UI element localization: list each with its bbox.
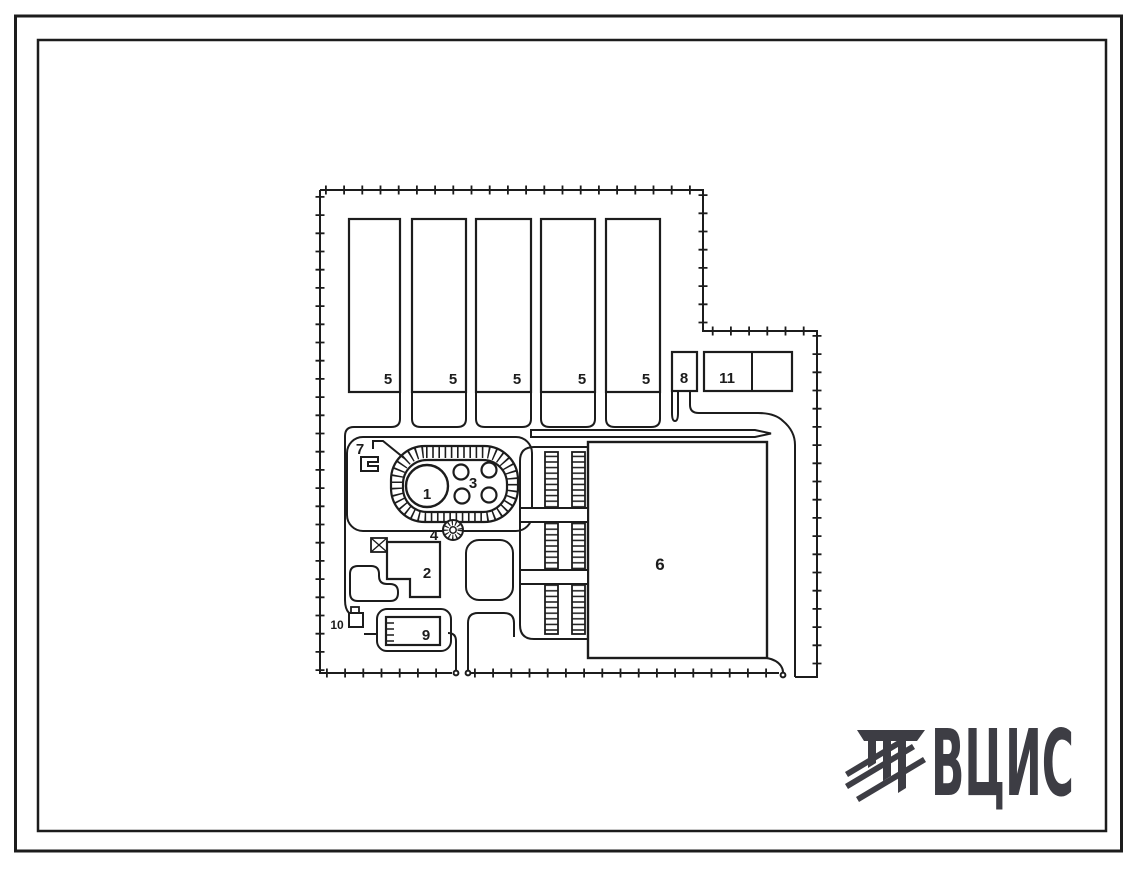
building-7-shape [361,457,378,471]
comb-strip [545,584,558,634]
gate-marker [466,671,471,676]
building-10-label: 10 [330,618,344,632]
building-9-rect [386,617,440,645]
building-5-rect [541,219,595,392]
building-2-label: 2 [423,565,431,582]
comb-strip [572,584,585,634]
building-11-rect [704,352,792,391]
treatment-basin-structure [373,441,518,522]
drawing-sheet: 5 5 5 5 5 8 11 6 1 3 4 [0,0,1139,869]
building-9-label: 9 [422,627,430,644]
comb-strip [545,522,558,570]
parking-combs [520,452,588,634]
comb-connector [520,570,588,584]
gate-marker [781,673,786,678]
building-5-rect [412,219,466,392]
building-5-rect [606,219,660,392]
building-5-label: 5 [449,371,457,388]
gate-marker [454,671,459,676]
building-10-rect [349,613,363,627]
building-3-circle [482,488,497,503]
vcis-logo: ВЦИС [845,710,1074,817]
building-1-label: 1 [423,486,431,503]
building-6-rect [588,442,767,658]
basin-ramp [373,441,404,458]
comb-strip [545,452,558,508]
building-7-label: 7 [356,441,364,458]
building-5-label: 5 [578,371,586,388]
building-3-circle [454,465,469,480]
buildings-5-group [349,219,660,392]
vcis-logo-text: ВЦИС [931,710,1074,817]
building-5-label: 5 [513,371,521,388]
building-11-label: 11 [719,370,735,387]
comb-strip [572,452,585,508]
building-8-label: 8 [680,370,688,387]
building-3-circle [482,463,497,478]
building-3-label: 3 [469,475,477,492]
building-5-rect [349,219,400,392]
road-island-c [466,540,513,600]
road-median [531,430,771,437]
building-5-rect [476,219,531,392]
site-plan-drawing: 5 5 5 5 5 8 11 6 1 3 4 [0,0,1139,869]
structure-4-tank [443,520,463,540]
building-5-label: 5 [384,371,392,388]
building-3-circle [455,489,470,504]
building-5-label: 5 [642,371,650,388]
comb-strip [572,522,585,570]
building-2-shape [387,542,440,597]
comb-connector [520,508,588,522]
vcis-logo-emblem [845,730,926,802]
building-6-label: 6 [655,555,664,574]
